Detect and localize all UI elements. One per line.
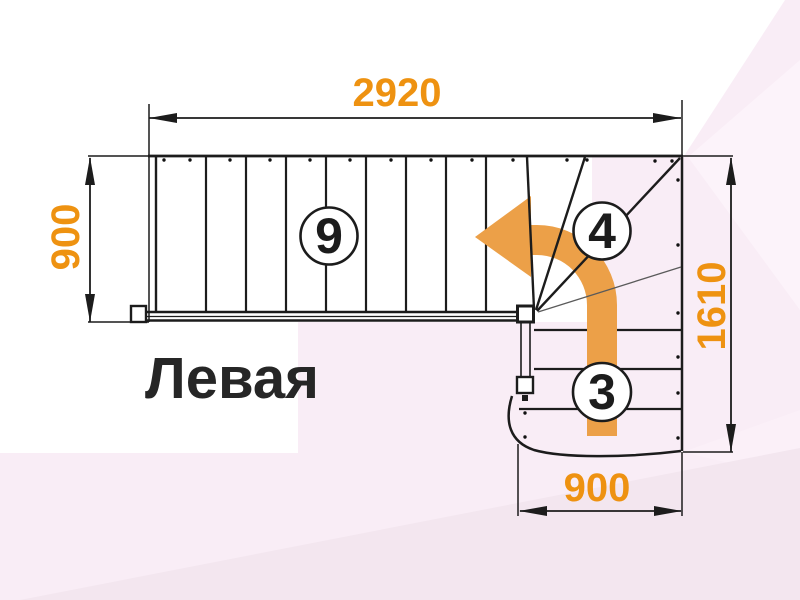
dimension-left-label: 900 xyxy=(46,137,86,337)
corner-newel-post xyxy=(518,306,534,322)
lower-flight-step-count: 3 xyxy=(572,362,632,422)
dimension-right-label: 1610 xyxy=(692,206,732,406)
winder-step-count: 4 xyxy=(572,201,632,261)
dimension-top-label: 2920 xyxy=(297,73,497,113)
dimension-bottom-label: 900 xyxy=(497,468,697,508)
stair-variant-title: Левая xyxy=(145,350,319,408)
staircase-plan-page: 2920 900 1610 900 9 4 3 Левая xyxy=(0,0,800,600)
straight-flight-step-count: 9 xyxy=(299,206,359,266)
lower-newel-post xyxy=(517,377,533,393)
left-newel-post xyxy=(131,306,146,322)
